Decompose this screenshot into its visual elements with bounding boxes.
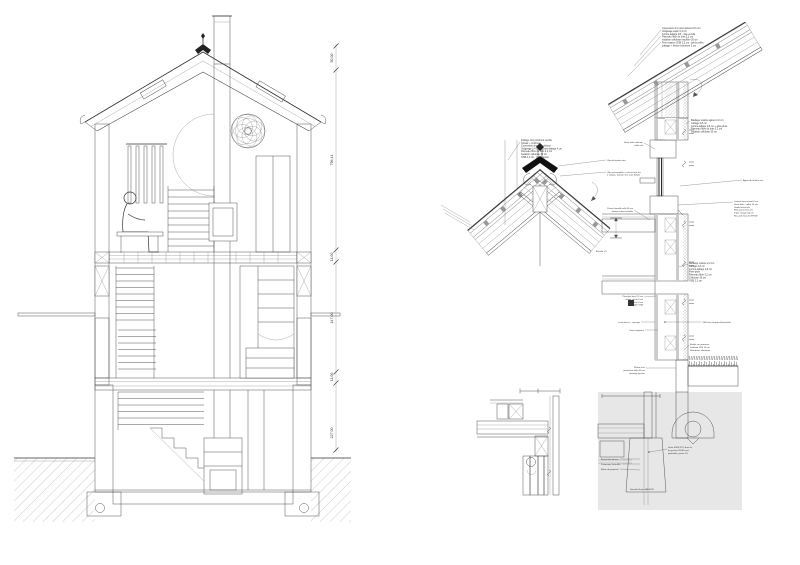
- attic-stair: [168, 186, 214, 252]
- basement-partitions: [248, 390, 264, 490]
- bench: [117, 232, 163, 253]
- foundation-note-footing: Semelle filante BA 60/25: [630, 488, 655, 491]
- architectural-drawing: 50,00 796,44 11,00 147,00 11,00 227,00: [0, 0, 800, 565]
- furnace: [204, 438, 242, 494]
- drip-arrowhead: [693, 92, 698, 97]
- dimension-chain: 50,00 796,44 11,00 147,00 11,00 227,00: [330, 44, 339, 453]
- wall-note-b: Appui de fenêtre zinc: [743, 179, 764, 182]
- roof: [80, 33, 326, 131]
- arc-window: [173, 114, 214, 196]
- dim-label-slab1: 11,00: [330, 253, 334, 262]
- window-section: [640, 140, 683, 215]
- middle-floor-slab: [95, 378, 311, 390]
- basement-stair: [118, 392, 210, 487]
- junction-cladding: [548, 396, 560, 495]
- wall-notes-beam-left: Poutre lamellé-collé 36 cmfixation sabot…: [607, 207, 634, 213]
- plinth-ground: [676, 356, 738, 393]
- skylight-left: [140, 80, 166, 99]
- roller-blind: [527, 458, 536, 467]
- skylight-right: [256, 81, 285, 102]
- wall-notes-f: Enduit sur panneauIsolation XPS 10 cmMem…: [690, 343, 711, 352]
- drip-arrow: [690, 79, 702, 94]
- wall-layers-mid1: [655, 214, 688, 281]
- floor-junction-detail: [477, 389, 560, 496]
- wall-notes-d: Bardage mélèze 2,2 cmLattage 2,8 cmContr…: [689, 262, 714, 282]
- wall-layers-upper: [655, 118, 688, 140]
- junction-wall-below: [523, 456, 548, 495]
- wall-section-strip: Bardage mélèze ajouré 2,2 cmLattage 2,8 …: [602, 118, 764, 393]
- ridge-note-right1: Clip de fixation zinc: [607, 159, 627, 162]
- attic-floor-slab: [109, 252, 297, 263]
- dim-label-basement: 227,00: [330, 428, 334, 439]
- ridge-notes-right2: Clip anti-tempête - crochet tous les2 vo…: [607, 171, 642, 177]
- drawing-sheet: 50,00 796,44 11,00 147,00 11,00 227,00: [0, 0, 800, 565]
- dim-label-roof: 796,44: [330, 155, 334, 166]
- foundation-detail: Drain Ø100 PVC dans litde gravier 20/40 …: [598, 392, 742, 510]
- wall-notes-c: Linteau bois massif 6 cmStore toile - co…: [734, 200, 758, 218]
- gutter-right: [321, 115, 326, 124]
- foundation-slab: [87, 490, 319, 516]
- interior-sill: [640, 178, 655, 183]
- middle-floor-stair: [116, 266, 156, 378]
- rose-window: [231, 114, 265, 148]
- attic-railing: [126, 144, 167, 203]
- ridge-notes: Faîtage zinc préformé ventiléClosoir + c…: [521, 139, 562, 159]
- building-section: 50,00 796,44 11,00 147,00 11,00 227,00: [14, 16, 351, 522]
- eave-notes: Couverture zinc joint debout 0,8 mmVolig…: [662, 27, 704, 47]
- wall-notes-base-left: Plinthe zincprotection delta 20 cmdraina…: [623, 366, 645, 375]
- ridge-note-bottom: Échelle 1:5: [596, 250, 608, 253]
- wall-note-e: OSB avec bande d'étanchéité: [702, 321, 732, 324]
- drain-board: [676, 360, 688, 393]
- gutter-left: [80, 115, 85, 124]
- dim-label-slab2: 11,00: [330, 373, 334, 382]
- ridge-right-plane: [519, 169, 611, 253]
- dim-label-ridge: 50,00: [330, 54, 334, 63]
- thickness-marker: [610, 218, 622, 238]
- wall-note-joint: Joint comprimé: [629, 329, 645, 332]
- wall-notes-a: Bardage mélèze ajouré 2,2 cmLattage 2,8 …: [691, 119, 728, 134]
- foundation-labels-left: Étanchéité bitumeProtection Delta-MSBéto…: [601, 458, 621, 471]
- footing-anchor-left: [96, 504, 105, 513]
- stove: [209, 203, 237, 241]
- wardrobe: [240, 266, 294, 378]
- junction-slab: [477, 421, 548, 456]
- floor-beam-2: [602, 276, 655, 306]
- dim-label-floor: 147,00: [330, 313, 334, 324]
- wall-notes-window-left: Store toile extérieurcoffre alu: [624, 141, 644, 147]
- ridge-post: [533, 186, 547, 266]
- floor-beam-1: [602, 214, 676, 232]
- wall-note-anchor: Lisse basse + ancrage: [618, 321, 641, 324]
- attic-cabinet: [256, 156, 290, 252]
- eave-leaders: [628, 30, 661, 76]
- ridge-cap: [195, 33, 211, 54]
- wall-notes-mid-left: Plancher bois 2,5 cmchape sèche 5 cmisol…: [623, 295, 644, 307]
- eave-detail: Couverture zinc joint debout 0,8 mmVolig…: [608, 22, 762, 133]
- batten-tails: [441, 205, 474, 230]
- ridge-detail: Faîtage zinc préformé ventiléClosoir + c…: [441, 139, 642, 266]
- junction-top-assembly: [490, 400, 523, 419]
- wall-layers-lower: [655, 294, 688, 360]
- footing-anchor-right: [300, 504, 309, 513]
